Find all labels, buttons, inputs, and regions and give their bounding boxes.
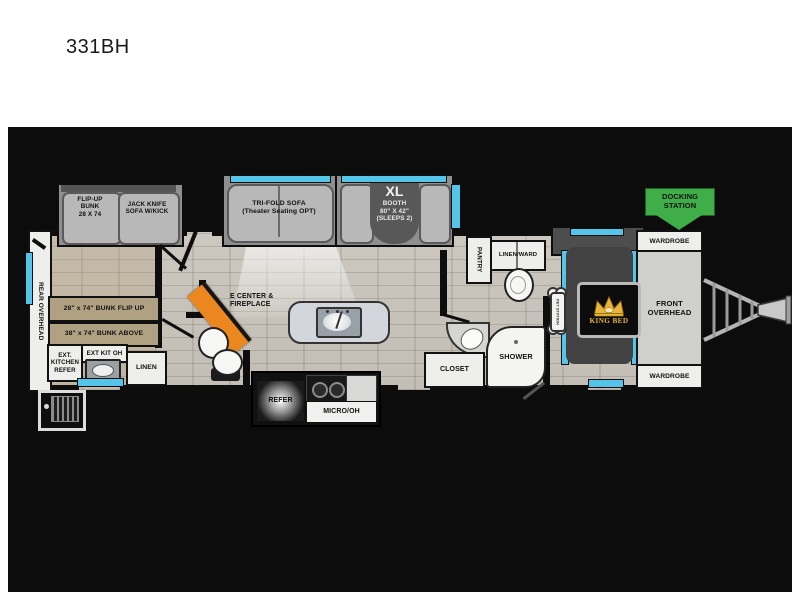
island-sink: [316, 307, 362, 338]
docking-station-badge: DOCKING STATION: [645, 188, 715, 216]
linen-label: LINEN: [136, 364, 157, 372]
pet-station: PET STATION: [547, 287, 565, 333]
bunk-above-label: 38" x 74" BUNK ABOVE: [65, 330, 143, 338]
refrigerator: REFER: [257, 381, 304, 421]
ext-kit-oh-label: EXT KIT OH: [87, 350, 123, 357]
king-bed-label: KING BED: [590, 317, 629, 325]
page-title: 331BH: [66, 36, 130, 59]
bath1-kitchen-wall: [243, 350, 250, 387]
bone-center: PET STATION: [550, 292, 566, 332]
refer-label: REFER: [268, 397, 292, 405]
ext-kitchen-refer-box: EXT. KITCHEN REFER: [47, 344, 83, 382]
slide1-backrest: [61, 185, 176, 192]
shower-label: SHOWER: [499, 353, 532, 362]
pet-station-label: PET STATION: [556, 299, 561, 325]
galley-counter: [346, 375, 377, 403]
ext-kitchen-refer-label: EXT. KITCHEN REFER: [51, 352, 79, 374]
hall-toilet-seat: [510, 276, 526, 294]
linen-ward-box: LINEN/WARD: [490, 240, 546, 271]
crown-icon: [592, 295, 626, 317]
booth-side-window: [451, 184, 461, 229]
shower: SHOWER: [486, 326, 546, 388]
grill-plate: [51, 396, 79, 422]
closet-box: CLOSET: [424, 352, 485, 388]
linen-ward-label: LINEN/WARD: [499, 252, 537, 259]
wall-top-4: [448, 229, 556, 236]
exterior-grill: [38, 390, 86, 431]
wardrobe-bottom-box: WARDROBE: [636, 364, 703, 389]
wardrobe-bottom-label: WARDROBE: [650, 373, 690, 381]
flip-up-bunk-label: FLIP-UP BUNK 28 X 74: [62, 196, 118, 218]
docking-station-arrow: [656, 215, 702, 230]
burner-right: [329, 382, 345, 398]
linen-box: LINEN: [126, 351, 167, 386]
burner-left: [312, 382, 328, 398]
pantry-label: PANTRY: [475, 247, 482, 272]
corner-vanity-sink: [456, 324, 487, 354]
shower-drain: [514, 340, 518, 344]
bunk-sofa-slideout: FLIP-UP BUNK 28 X 74 JACK KNIFE SOFA W/K…: [57, 183, 184, 247]
rear-window: [25, 252, 33, 305]
stove: [306, 375, 348, 403]
sofa-window: [230, 175, 331, 183]
ext-kitchen-sink: [92, 364, 114, 377]
kitchen-island: [288, 301, 390, 344]
bunk-flip-up-label: 28" x 74" BUNK FLIP UP: [64, 305, 145, 313]
pantry-box: PANTRY: [466, 236, 492, 284]
bath1-toilet: [212, 349, 243, 376]
booth-window: [341, 175, 447, 183]
booth-slideout: XL BOOTH 80" X 42" (SLEEPS 2): [335, 174, 454, 247]
floorplan-page: 331BH REAR OVERHEAD FLIP-UP BUNK 28 X 74…: [0, 0, 800, 600]
e-center-label: E CENTER & FIREPLACE: [230, 293, 288, 310]
micro-oh-label: MICRO/OH: [323, 408, 360, 416]
tri-fold-sofa-label: TRI-FOLD SOFA (Theater Seating OPT): [226, 200, 332, 216]
king-bed-graphic: KING BED: [577, 282, 641, 338]
wall-bottom-2: [120, 385, 255, 392]
jack-knife-sofa: [118, 192, 180, 245]
booth-xl-label: XL: [370, 184, 419, 198]
closet-label: CLOSET: [440, 366, 469, 374]
bedroom-bottom-window: [588, 379, 624, 388]
rear-overhead-label: REAR OVERHEAD: [36, 282, 44, 340]
microwave-overhead: MICRO/OH: [306, 401, 377, 423]
booth-detail-label: BOOTH 80" X 42" (SLEEPS 2): [368, 200, 421, 223]
bath2-left-wall: [440, 250, 447, 316]
bunk-flip-up-box: 28" x 74" BUNK FLIP UP: [48, 296, 160, 322]
booth-bench-right: [419, 184, 451, 244]
bedroom-top-window: [570, 228, 624, 236]
ext-kitchen-window: [77, 378, 124, 387]
docking-station-label: DOCKING STATION: [662, 193, 698, 211]
island-faucet-knobs: [326, 310, 329, 313]
hall-toilet: [504, 268, 534, 302]
front-overhead-label: FRONT OVERHEAD: [648, 300, 692, 318]
wardrobe-top-label: WARDROBE: [650, 238, 690, 246]
tri-fold-sofa-slideout: TRI-FOLD SOFA (Theater Seating OPT): [222, 174, 339, 247]
front-overhead-box: FRONT OVERHEAD: [636, 250, 703, 368]
hitch-frame: [702, 268, 798, 352]
galley-unit: REFER MICRO/OH: [251, 371, 381, 427]
grill-knob: [44, 404, 49, 409]
jack-knife-sofa-label: JACK KNIFE SOFA W/KICK: [117, 201, 177, 216]
